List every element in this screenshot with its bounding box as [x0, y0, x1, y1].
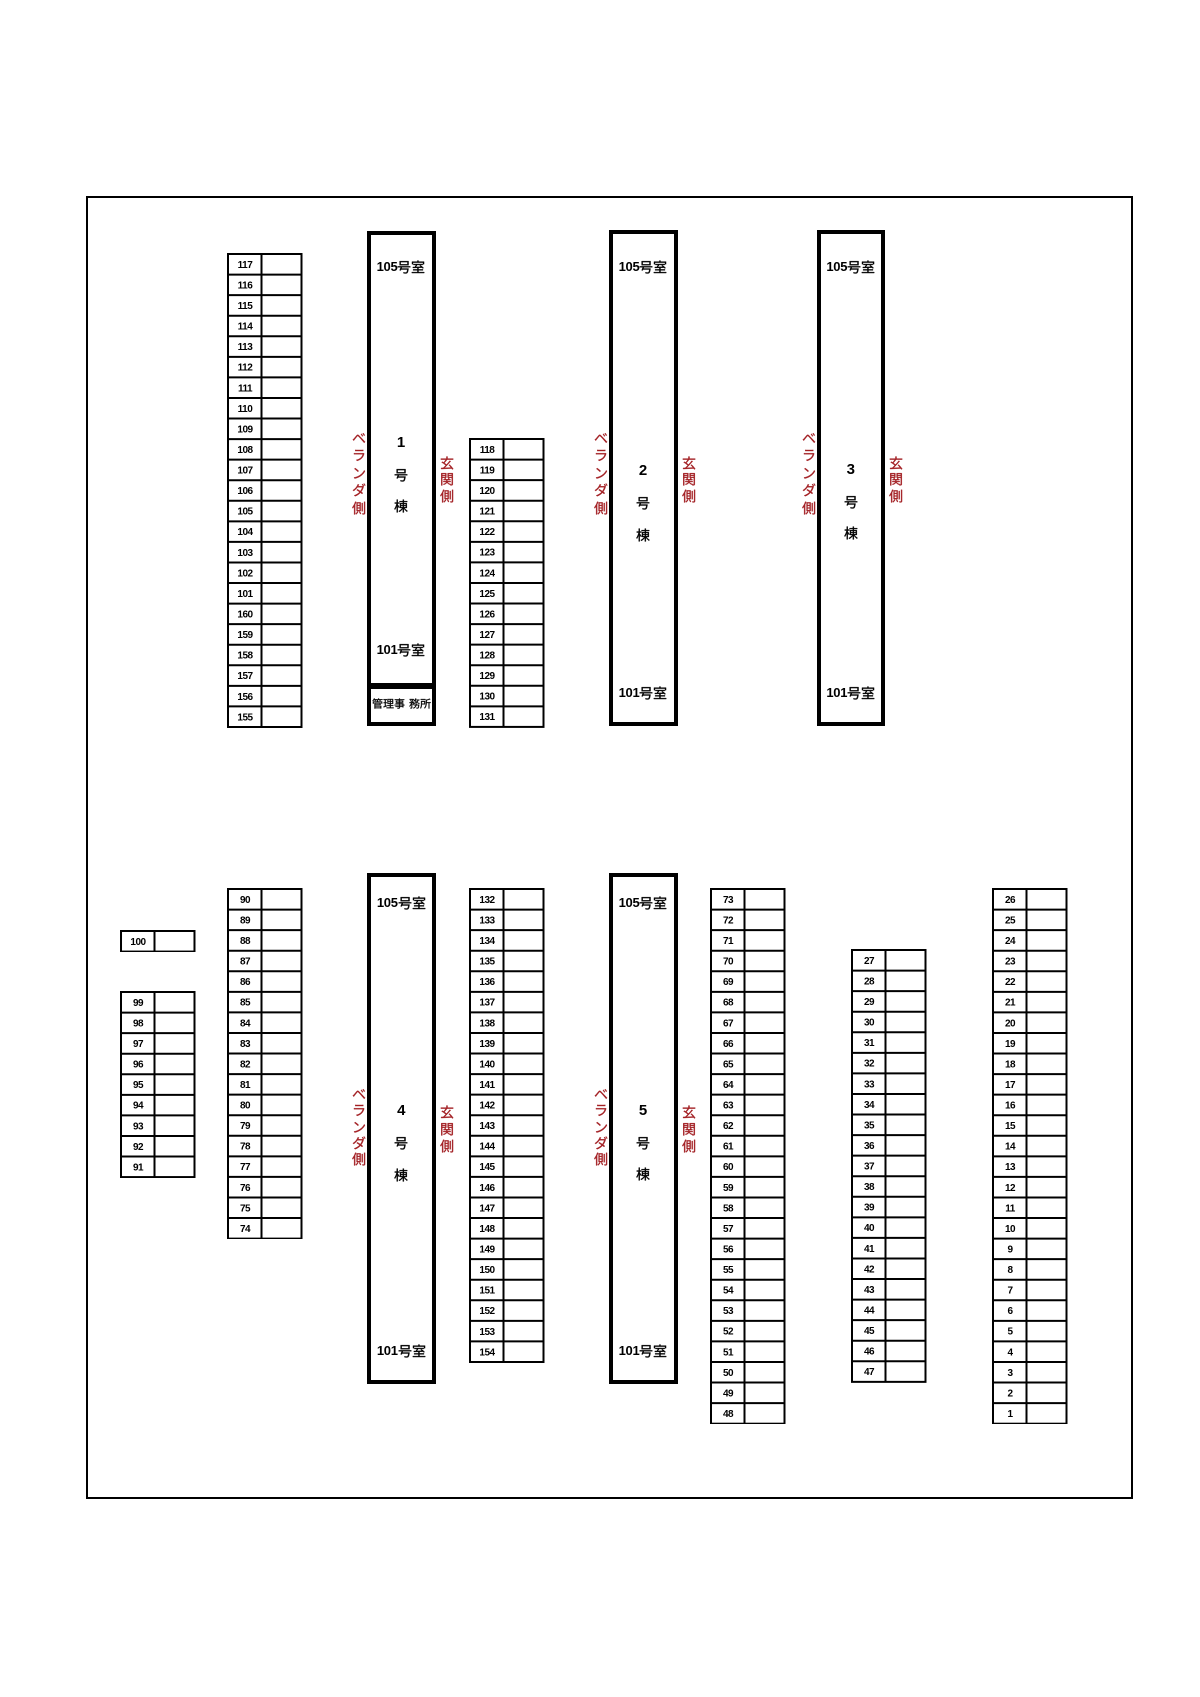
- svg-text:84: 84: [240, 1018, 251, 1029]
- svg-text:66: 66: [722, 1039, 733, 1050]
- svg-text:135: 135: [479, 956, 495, 967]
- svg-text:56: 56: [722, 1244, 733, 1255]
- svg-text:133: 133: [479, 915, 495, 926]
- svg-text:137: 137: [479, 997, 495, 1008]
- svg-text:115: 115: [238, 301, 254, 312]
- svg-text:120: 120: [479, 486, 495, 497]
- svg-text:79: 79: [240, 1121, 251, 1132]
- svg-text:134: 134: [479, 936, 495, 947]
- svg-text:15: 15: [1004, 1121, 1015, 1132]
- svg-text:39: 39: [863, 1203, 874, 1214]
- svg-text:150: 150: [479, 1265, 495, 1276]
- svg-text:149: 149: [479, 1244, 495, 1255]
- svg-text:14: 14: [1004, 1141, 1015, 1152]
- svg-text:18: 18: [1004, 1059, 1015, 1070]
- svg-text:127: 127: [479, 630, 495, 641]
- svg-text:138: 138: [479, 1018, 495, 1029]
- svg-text:147: 147: [479, 1203, 495, 1214]
- svg-text:20: 20: [1004, 1018, 1015, 1029]
- svg-text:113: 113: [238, 342, 254, 353]
- svg-text:54: 54: [722, 1285, 733, 1296]
- svg-text:25: 25: [1004, 915, 1015, 926]
- svg-text:104: 104: [237, 527, 253, 538]
- svg-text:71: 71: [722, 936, 733, 947]
- svg-text:126: 126: [479, 609, 495, 620]
- svg-text:160: 160: [237, 609, 253, 620]
- svg-text:98: 98: [132, 1018, 143, 1029]
- svg-text:42: 42: [863, 1265, 874, 1276]
- svg-text:128: 128: [479, 650, 495, 661]
- svg-text:92: 92: [132, 1141, 143, 1152]
- svg-text:95: 95: [132, 1080, 143, 1091]
- svg-text:145: 145: [479, 1162, 495, 1173]
- svg-text:123: 123: [479, 548, 495, 559]
- svg-text:11: 11: [1005, 1203, 1016, 1214]
- svg-text:74: 74: [240, 1224, 251, 1235]
- svg-text:67: 67: [722, 1018, 733, 1029]
- svg-text:51: 51: [722, 1347, 733, 1358]
- svg-text:10: 10: [1004, 1224, 1015, 1235]
- svg-text:141: 141: [479, 1080, 495, 1091]
- svg-text:46: 46: [863, 1347, 874, 1358]
- svg-text:22: 22: [1004, 977, 1015, 988]
- svg-text:32: 32: [863, 1059, 874, 1070]
- svg-text:124: 124: [479, 568, 495, 579]
- svg-text:23: 23: [1004, 956, 1015, 967]
- svg-text:64: 64: [722, 1080, 733, 1091]
- svg-text:105: 105: [237, 507, 253, 518]
- svg-text:99: 99: [132, 997, 143, 1008]
- svg-text:69: 69: [722, 977, 733, 988]
- svg-text:119: 119: [479, 465, 495, 476]
- svg-text:108: 108: [237, 445, 253, 456]
- svg-text:53: 53: [722, 1306, 733, 1317]
- svg-text:139: 139: [479, 1039, 495, 1050]
- svg-text:94: 94: [132, 1100, 143, 1111]
- svg-text:63: 63: [722, 1100, 733, 1111]
- svg-text:17: 17: [1004, 1080, 1015, 1091]
- svg-text:91: 91: [132, 1162, 143, 1173]
- svg-text:26: 26: [1004, 895, 1015, 906]
- svg-text:34: 34: [863, 1100, 874, 1111]
- svg-text:130: 130: [479, 691, 495, 702]
- svg-text:81: 81: [240, 1080, 251, 1091]
- svg-text:87: 87: [240, 956, 251, 967]
- svg-text:114: 114: [238, 322, 254, 333]
- svg-text:116: 116: [238, 280, 254, 291]
- svg-text:129: 129: [479, 671, 495, 682]
- svg-text:83: 83: [240, 1039, 251, 1050]
- svg-text:45: 45: [863, 1326, 874, 1337]
- svg-text:90: 90: [240, 895, 251, 906]
- svg-text:107: 107: [237, 466, 253, 477]
- svg-text:12: 12: [1004, 1182, 1015, 1193]
- svg-text:143: 143: [479, 1121, 495, 1132]
- svg-text:48: 48: [722, 1409, 733, 1420]
- svg-text:86: 86: [240, 977, 251, 988]
- svg-text:35: 35: [863, 1121, 874, 1132]
- svg-text:89: 89: [240, 915, 251, 926]
- svg-text:152: 152: [479, 1306, 495, 1317]
- svg-text:112: 112: [238, 363, 254, 374]
- svg-text:24: 24: [1004, 936, 1015, 947]
- svg-text:40: 40: [863, 1224, 874, 1235]
- svg-text:65: 65: [722, 1059, 733, 1070]
- svg-text:154: 154: [479, 1347, 495, 1358]
- svg-text:72: 72: [722, 915, 733, 926]
- svg-text:101: 101: [237, 589, 253, 600]
- svg-text:52: 52: [722, 1326, 733, 1337]
- svg-text:158: 158: [237, 651, 253, 662]
- svg-text:57: 57: [722, 1224, 733, 1235]
- svg-text:121: 121: [479, 506, 495, 517]
- svg-text:85: 85: [240, 997, 251, 1008]
- svg-text:49: 49: [722, 1388, 733, 1399]
- svg-text:33: 33: [863, 1080, 874, 1091]
- svg-text:80: 80: [240, 1100, 251, 1111]
- svg-text:103: 103: [237, 548, 253, 559]
- svg-text:19: 19: [1004, 1039, 1015, 1050]
- svg-text:50: 50: [722, 1368, 733, 1379]
- svg-text:125: 125: [479, 589, 495, 600]
- svg-text:142: 142: [479, 1100, 495, 1111]
- svg-text:61: 61: [722, 1141, 733, 1152]
- svg-text:36: 36: [863, 1141, 874, 1152]
- svg-text:117: 117: [238, 260, 254, 271]
- svg-text:144: 144: [479, 1141, 495, 1152]
- svg-text:43: 43: [863, 1285, 874, 1296]
- svg-text:30: 30: [863, 1018, 874, 1029]
- svg-text:29: 29: [863, 997, 874, 1008]
- svg-text:62: 62: [722, 1121, 733, 1132]
- svg-text:153: 153: [479, 1326, 495, 1337]
- svg-text:131: 131: [479, 712, 495, 723]
- svg-text:159: 159: [237, 630, 253, 641]
- svg-text:60: 60: [722, 1162, 733, 1173]
- svg-text:109: 109: [237, 424, 253, 435]
- svg-text:75: 75: [240, 1203, 251, 1214]
- svg-text:55: 55: [722, 1265, 733, 1276]
- svg-text:68: 68: [722, 997, 733, 1008]
- svg-text:37: 37: [863, 1162, 874, 1173]
- svg-text:47: 47: [863, 1367, 874, 1378]
- svg-text:136: 136: [479, 977, 495, 988]
- svg-text:59: 59: [722, 1182, 733, 1193]
- svg-text:111: 111: [238, 383, 253, 394]
- svg-text:157: 157: [237, 671, 253, 682]
- svg-text:96: 96: [132, 1059, 143, 1070]
- svg-text:58: 58: [722, 1203, 733, 1214]
- svg-text:102: 102: [237, 568, 253, 579]
- svg-text:118: 118: [479, 445, 495, 456]
- svg-text:156: 156: [237, 692, 253, 703]
- svg-text:97: 97: [132, 1039, 143, 1050]
- svg-text:44: 44: [863, 1306, 874, 1317]
- svg-text:21: 21: [1004, 997, 1015, 1008]
- svg-text:70: 70: [722, 956, 733, 967]
- svg-text:76: 76: [240, 1182, 251, 1193]
- svg-text:88: 88: [240, 936, 251, 947]
- svg-text:13: 13: [1004, 1162, 1015, 1173]
- svg-text:106: 106: [237, 486, 253, 497]
- svg-text:73: 73: [722, 895, 733, 906]
- svg-text:16: 16: [1004, 1100, 1015, 1111]
- svg-text:122: 122: [479, 527, 495, 538]
- svg-text:155: 155: [237, 712, 253, 723]
- svg-text:41: 41: [863, 1244, 874, 1255]
- svg-text:78: 78: [240, 1141, 251, 1152]
- svg-text:93: 93: [132, 1121, 143, 1132]
- svg-text:82: 82: [240, 1059, 251, 1070]
- svg-text:146: 146: [479, 1182, 495, 1193]
- svg-text:140: 140: [479, 1059, 495, 1070]
- svg-text:148: 148: [479, 1224, 495, 1235]
- svg-text:132: 132: [479, 895, 495, 906]
- svg-text:110: 110: [238, 404, 254, 415]
- svg-text:100: 100: [130, 936, 146, 947]
- svg-text:31: 31: [863, 1038, 874, 1049]
- svg-text:38: 38: [863, 1182, 874, 1193]
- svg-text:27: 27: [863, 956, 874, 967]
- svg-text:77: 77: [240, 1162, 251, 1173]
- svg-text:28: 28: [863, 977, 874, 988]
- svg-text:151: 151: [479, 1285, 495, 1296]
